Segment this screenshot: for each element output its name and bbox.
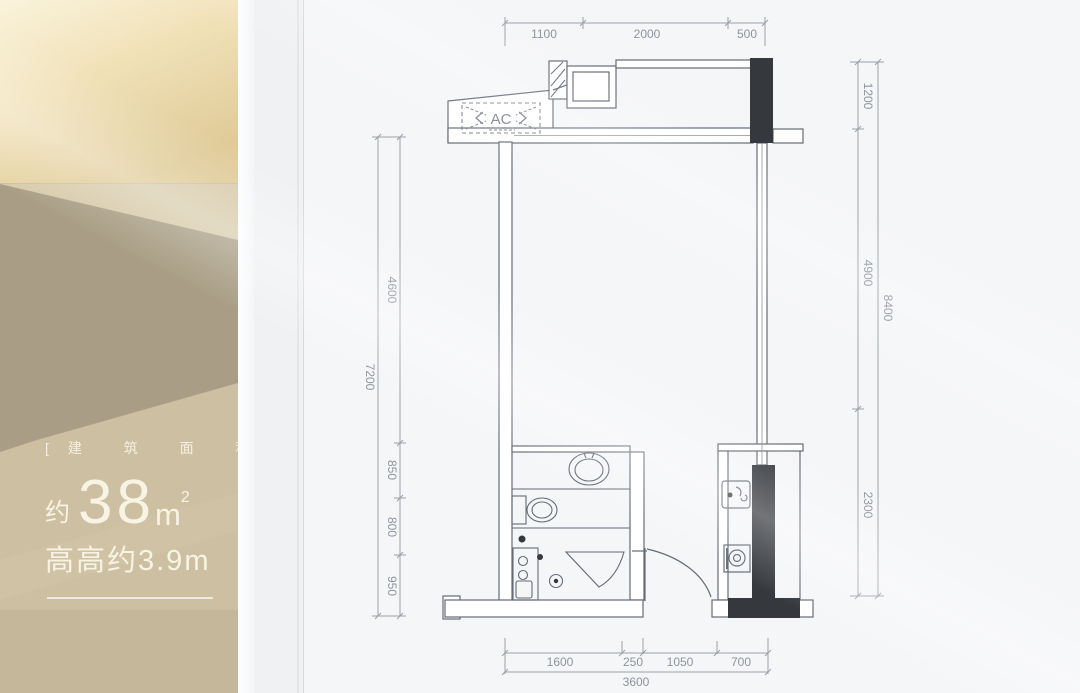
nook-top-wall [718, 444, 803, 451]
dim-label: 1200 [861, 83, 875, 110]
dim-label: 1600 [547, 655, 574, 669]
dim-label: 4600 [385, 277, 399, 304]
column-bottom-right [752, 465, 775, 601]
left-wall [499, 142, 512, 602]
bottom-wall-left [445, 600, 643, 617]
bathroom-right-wall [630, 452, 644, 600]
floorplan-page: [建 筑 面 积] 约 38 m 2 高高约3.9m [0, 0, 1080, 693]
dim-label: 950 [385, 576, 399, 596]
dim-label: 1050 [667, 655, 694, 669]
ac-label: AC [491, 111, 512, 128]
dim-label: 7200 [363, 364, 377, 391]
nook-left-wall [718, 451, 728, 600]
plan-paper [303, 0, 1080, 693]
balcony-top-wall [616, 60, 752, 68]
dim-label: 500 [737, 27, 757, 41]
dim-label: 1100 [531, 27, 557, 41]
dim-label: 8400 [881, 295, 895, 322]
column-base [728, 598, 800, 618]
column-top-right [750, 58, 773, 143]
dim-label: 700 [731, 655, 751, 669]
top-right-stub [773, 129, 803, 143]
dim-label: 2300 [861, 492, 875, 519]
bathroom-top-wall [512, 446, 630, 452]
dim-label: 2000 [634, 27, 661, 41]
dim-label: 850 [385, 460, 399, 480]
dim-label: 250 [623, 655, 643, 669]
floor-plan-drawing: AC [0, 0, 1080, 693]
dim-label: 4900 [861, 260, 875, 287]
page-edge-lines [298, 0, 304, 693]
dim-label: 800 [385, 517, 399, 537]
dim-label: 3600 [623, 675, 650, 689]
